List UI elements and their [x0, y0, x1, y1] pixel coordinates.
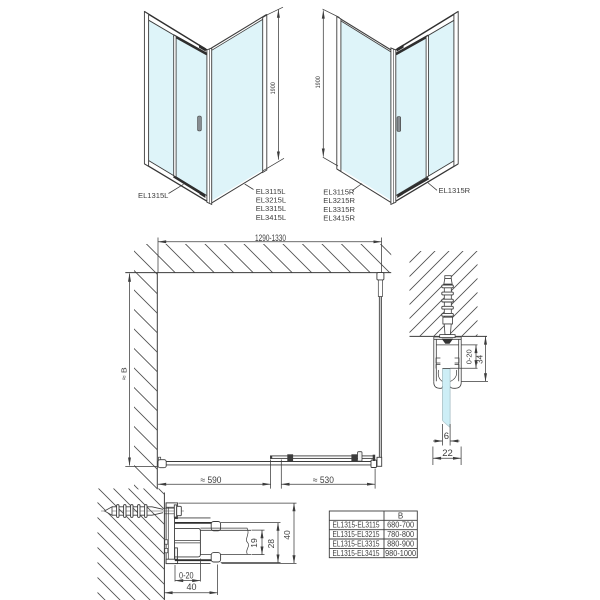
svg-text:780-800: 780-800	[387, 530, 415, 539]
svg-text:EL3315R: EL3315R	[323, 205, 355, 214]
svg-text:EL1315-EL3315: EL1315-EL3315	[333, 540, 380, 549]
svg-text:≈ 530: ≈ 530	[313, 475, 334, 485]
svg-text:EL3215R: EL3215R	[323, 196, 355, 205]
svg-text:680-700: 680-700	[387, 521, 415, 530]
svg-text:28: 28	[266, 539, 276, 549]
svg-text:EL3115R: EL3115R	[323, 188, 355, 197]
svg-text:0-20: 0-20	[179, 570, 194, 580]
svg-text:≈ B: ≈ B	[119, 367, 128, 380]
svg-text:40: 40	[282, 530, 292, 540]
svg-text:980-1000: 980-1000	[385, 549, 417, 558]
svg-text:EL1315L: EL1315L	[138, 191, 168, 200]
svg-text:880-900: 880-900	[387, 540, 415, 549]
svg-text:EL1315R: EL1315R	[439, 186, 471, 195]
svg-text:0-20: 0-20	[465, 349, 474, 364]
svg-text:34: 34	[476, 354, 485, 363]
svg-text:EL1315-EL3415: EL1315-EL3415	[333, 549, 380, 558]
svg-text:EL3115L: EL3115L	[256, 187, 286, 196]
svg-text:6: 6	[444, 431, 449, 442]
svg-text:EL3415L: EL3415L	[256, 213, 286, 222]
svg-text:22: 22	[442, 448, 453, 459]
svg-text:B: B	[398, 512, 403, 521]
svg-text:EL1315-EL3115: EL1315-EL3115	[333, 521, 380, 530]
svg-text:1900: 1900	[270, 82, 277, 94]
svg-text:1900: 1900	[315, 76, 322, 88]
svg-text:≈ 590: ≈ 590	[201, 475, 222, 485]
svg-text:40: 40	[186, 582, 196, 592]
svg-text:1290-1330: 1290-1330	[255, 233, 286, 243]
svg-text:19: 19	[249, 538, 259, 548]
svg-text:EL3415R: EL3415R	[323, 214, 355, 223]
svg-text:EL3315L: EL3315L	[256, 204, 286, 213]
svg-text:EL3215L: EL3215L	[256, 196, 286, 205]
svg-text:EL1315-EL3215: EL1315-EL3215	[333, 530, 380, 539]
